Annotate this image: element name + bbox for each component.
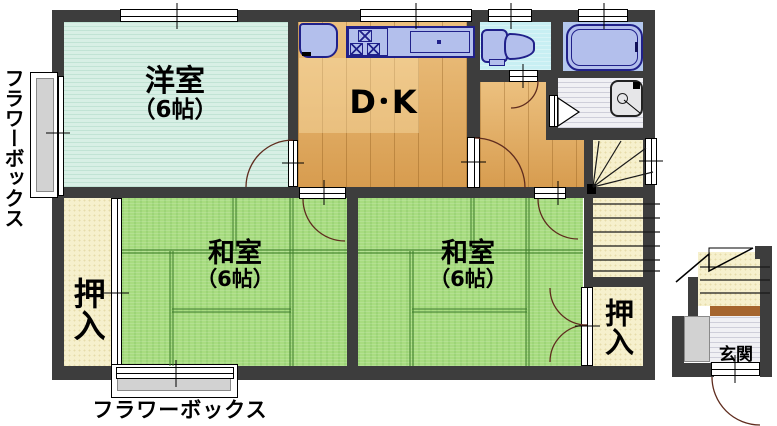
wall bbox=[347, 198, 358, 366]
bath-faucet-icon bbox=[635, 42, 638, 52]
stove-burner bbox=[367, 43, 380, 55]
wall bbox=[584, 140, 593, 287]
label-room-dk: D･K bbox=[323, 86, 443, 120]
wall bbox=[688, 277, 698, 316]
window bbox=[488, 9, 532, 22]
shoe-cabinet bbox=[684, 316, 710, 362]
room-name: 洋室 bbox=[85, 66, 265, 98]
toilet-base bbox=[489, 59, 505, 66]
wall bbox=[551, 22, 563, 73]
label-closet-1: 押入 bbox=[70, 246, 104, 371]
faucet-icon bbox=[437, 40, 441, 44]
window bbox=[120, 9, 238, 22]
stove-burner bbox=[350, 43, 363, 55]
room-size: （6帖） bbox=[85, 98, 265, 122]
door-closet-2-double bbox=[581, 287, 593, 366]
window bbox=[116, 367, 234, 379]
refrigerator-handle bbox=[302, 52, 311, 56]
stairs-entrance bbox=[698, 252, 760, 306]
room-name: 和室 bbox=[140, 240, 330, 268]
door-toilet bbox=[509, 70, 538, 82]
bathtub-inner-rim bbox=[571, 29, 638, 66]
door-dk-to-hallway bbox=[467, 137, 480, 188]
room-size: （6帖） bbox=[140, 268, 330, 290]
stair-newel-post bbox=[587, 184, 596, 194]
label-flower-box-bottom: フラワーボックス bbox=[92, 399, 268, 421]
label-closet-2: 押入 bbox=[602, 288, 632, 366]
wall bbox=[584, 277, 655, 287]
wall bbox=[755, 246, 772, 259]
wall bbox=[288, 22, 298, 142]
stairs-winder bbox=[593, 140, 643, 188]
flower-box-left bbox=[36, 78, 54, 192]
label-genkan: 玄関 bbox=[708, 347, 764, 365]
door-closet-1-sliding bbox=[111, 198, 122, 366]
label-room-western: 洋室 （6帖） bbox=[85, 66, 265, 122]
stove-burner bbox=[358, 30, 372, 42]
label-flower-box-left: フラワーボックス bbox=[2, 58, 23, 238]
door-washroom-fold bbox=[549, 95, 558, 127]
washbasin-drain bbox=[617, 93, 628, 104]
room-name: 和室 bbox=[373, 240, 563, 268]
label-room-japanese-2: 和室 （6帖） bbox=[373, 240, 563, 290]
wall bbox=[546, 128, 655, 140]
door-western-to-dk bbox=[288, 140, 298, 187]
stairs-straight-run bbox=[593, 188, 643, 277]
door-hall-to-japanese2 bbox=[534, 187, 566, 199]
washbasin-tap-icon bbox=[633, 82, 640, 89]
door-dk-to-japanese1 bbox=[299, 187, 346, 199]
wall bbox=[553, 71, 643, 78]
entrance-step bbox=[710, 306, 760, 316]
window bbox=[578, 9, 628, 22]
window bbox=[360, 9, 472, 22]
label-room-japanese-1: 和室 （6帖） bbox=[140, 240, 330, 290]
wall bbox=[672, 363, 714, 377]
window bbox=[645, 138, 657, 185]
room-size: （6帖） bbox=[373, 268, 563, 290]
floor-plan: 洋室 （6帖） D･K 和室 （6帖） 和室 （6帖） 押入 押入 玄関 フラワ… bbox=[0, 0, 777, 426]
